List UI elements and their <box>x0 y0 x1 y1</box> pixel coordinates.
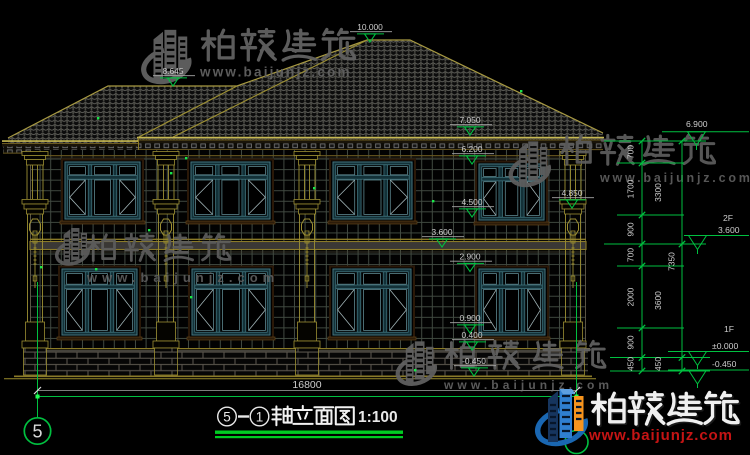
svg-text:3.600: 3.600 <box>432 227 453 237</box>
svg-text:7350: 7350 <box>667 252 677 271</box>
svg-text:www.baijunjz.com: www.baijunjz.com <box>588 427 733 444</box>
svg-text:2000: 2000 <box>626 287 636 306</box>
svg-text:5: 5 <box>223 410 231 425</box>
svg-text:1:100: 1:100 <box>358 409 398 426</box>
svg-text:450: 450 <box>626 357 636 371</box>
svg-text:450: 450 <box>653 357 663 371</box>
svg-text:6.900: 6.900 <box>686 119 708 129</box>
svg-text:4.850: 4.850 <box>562 188 583 198</box>
svg-text:www.baijunjz.com: www.baijunjz.com <box>86 270 279 285</box>
svg-text:6.200: 6.200 <box>462 144 483 154</box>
svg-text:900: 900 <box>626 222 636 236</box>
svg-text:900: 900 <box>626 335 636 349</box>
svg-text:0.900: 0.900 <box>460 313 481 323</box>
svg-text:0.400: 0.400 <box>462 330 483 340</box>
svg-text:±0.000: ±0.000 <box>712 341 738 351</box>
svg-text:2.900: 2.900 <box>460 252 481 262</box>
svg-text:1700: 1700 <box>626 179 636 198</box>
svg-text:www.baijunjz.com: www.baijunjz.com <box>443 378 613 392</box>
svg-text:7.050: 7.050 <box>460 115 481 125</box>
svg-text:16800: 16800 <box>292 379 321 391</box>
svg-text:2F: 2F <box>723 213 733 223</box>
svg-text:8.645: 8.645 <box>163 66 184 76</box>
svg-text:-0.450: -0.450 <box>712 359 737 369</box>
svg-text:700: 700 <box>626 248 636 262</box>
svg-text:www.baijunjz.com: www.baijunjz.com <box>199 65 352 80</box>
svg-text:3600: 3600 <box>653 291 663 310</box>
svg-text:3300: 3300 <box>653 183 663 202</box>
svg-text:www.baijunjz.com: www.baijunjz.com <box>599 171 750 185</box>
svg-text:-0.450: -0.450 <box>462 356 486 366</box>
svg-text:10.000: 10.000 <box>357 22 383 32</box>
svg-text:1F: 1F <box>724 324 734 334</box>
svg-text:700: 700 <box>626 145 636 159</box>
svg-text:3.600: 3.600 <box>718 225 740 235</box>
svg-text:5: 5 <box>32 422 42 442</box>
svg-text:1: 1 <box>256 410 264 425</box>
svg-text:4.500: 4.500 <box>462 197 483 207</box>
